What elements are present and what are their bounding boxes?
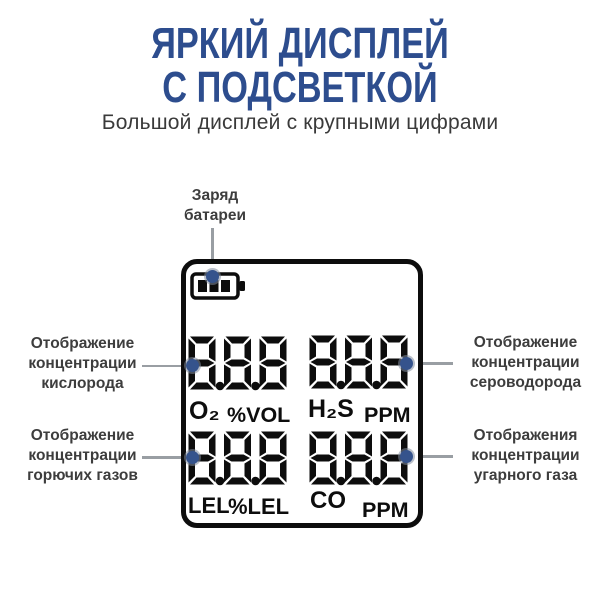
- segment-readout-carbon-monoxide: [308, 430, 409, 486]
- anchor-dot-combustible: [186, 451, 199, 464]
- anchor-dot-carbon-monoxide: [400, 450, 413, 463]
- page-title-line2: С ПОДСВЕТКОЙ: [66, 66, 534, 110]
- anchor-dot-battery: [206, 270, 219, 283]
- unit-label-h2s: H₂S: [308, 395, 354, 424]
- anchor-dot-hydrogen-sulfide: [400, 357, 413, 370]
- battery-icon: [190, 272, 248, 300]
- unit-label-lel: LEL: [188, 493, 230, 519]
- unit-label-percent-lel: %LEL: [228, 494, 289, 520]
- unit-label-ppm-2: PPM: [362, 498, 409, 523]
- callout-hydrogen-sulfide-concentration: Отображение концентрации сероводорода: [448, 333, 600, 393]
- segment-readout-hydrogen-sulfide: [308, 334, 409, 390]
- callout-oxygen-concentration: Отображение концентрации кислорода: [5, 334, 160, 394]
- anchor-dot-oxygen: [186, 359, 199, 372]
- segment-readout-oxygen: [187, 335, 288, 391]
- callout-battery-charge: Заряд батареи: [150, 186, 280, 225]
- callout-combustible-gas-concentration: Отображение концентрации горючих газов: [5, 426, 160, 486]
- infographic-page: ЯРКИЙ ДИСПЛЕЙ С ПОДСВЕТКОЙ Большой диспл…: [0, 0, 600, 600]
- unit-label-o2: O₂: [189, 397, 220, 426]
- callout-carbon-monoxide-concentration: Отображения концентрации угарного газа: [448, 426, 600, 486]
- page-title: ЯРКИЙ ДИСПЛЕЙ С ПОДСВЕТКОЙ: [66, 22, 534, 110]
- page-title-line1: ЯРКИЙ ДИСПЛЕЙ: [66, 22, 534, 66]
- unit-label-co: CO: [310, 487, 346, 515]
- unit-label-ppm-1: PPM: [364, 403, 411, 428]
- page-subtitle: Большой дисплей с крупными цифрами: [0, 111, 600, 135]
- unit-label-vol: %VOL: [227, 403, 290, 428]
- segment-readout-combustible: [187, 430, 288, 486]
